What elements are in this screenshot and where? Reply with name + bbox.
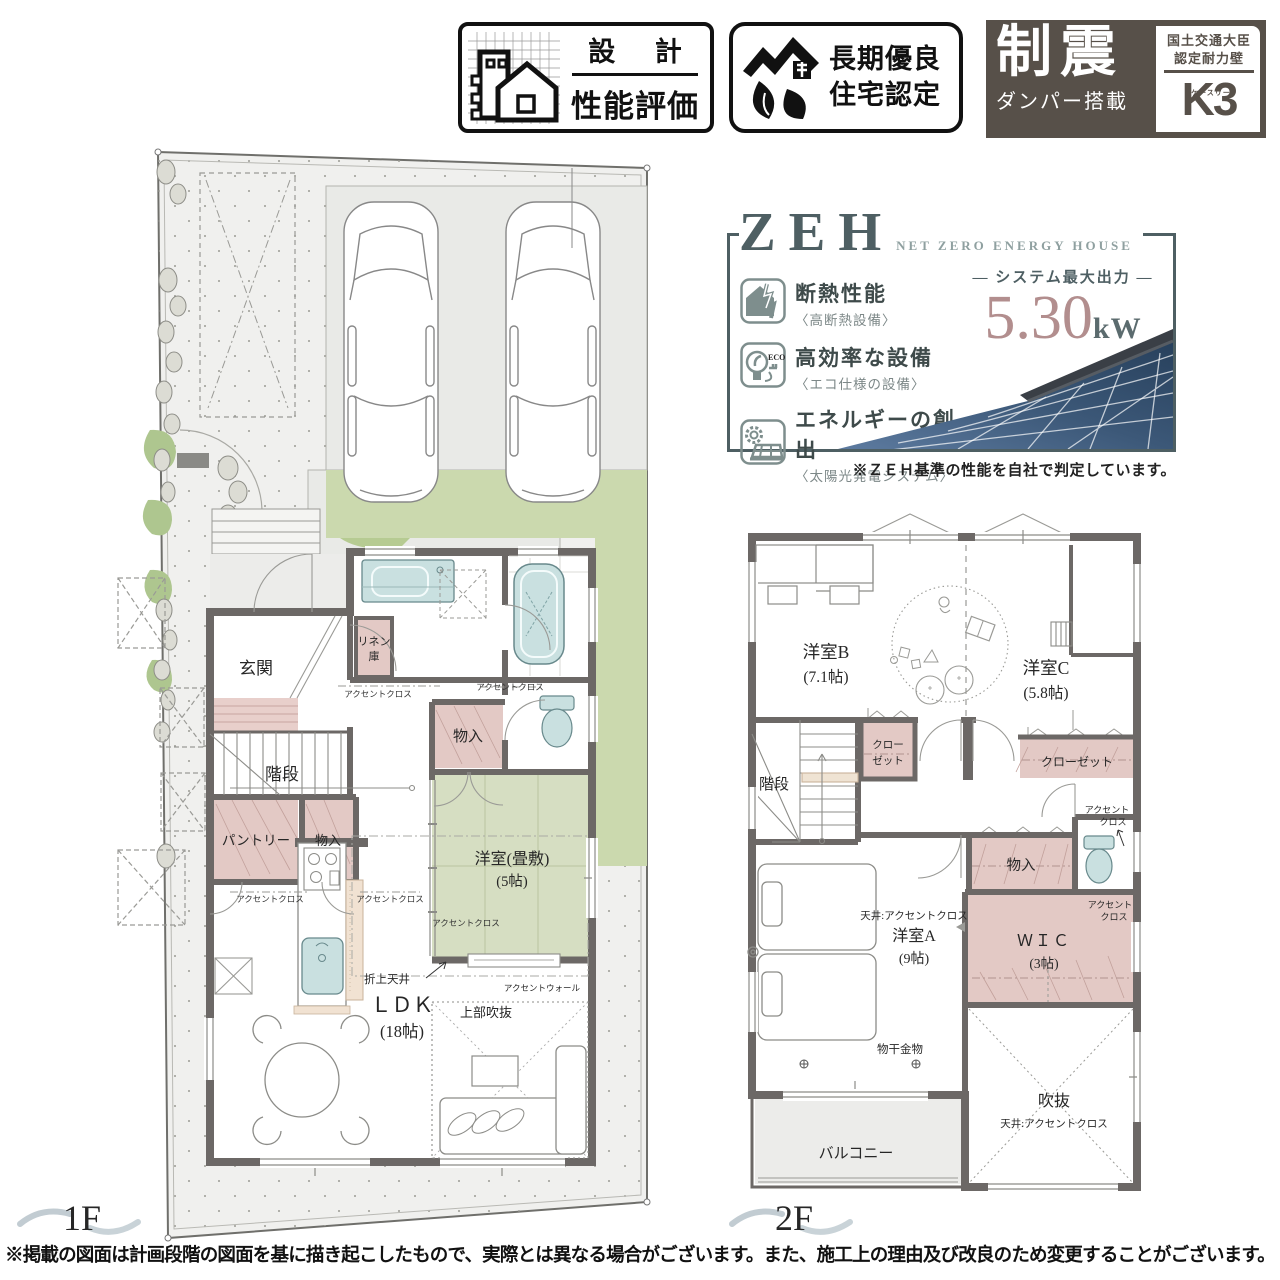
room-label-closet-r: クローゼット bbox=[1041, 755, 1113, 769]
label-accent-cloth: アクセントクロス bbox=[476, 682, 544, 692]
floor-plan-2f: 洋室B (7.1帖) 洋室C (5.8帖) 階段 クロー ゼット クローゼット … bbox=[728, 502, 1148, 1202]
k3-logo-kana: ケースリー bbox=[1191, 90, 1231, 97]
room-label-monoiri-2f: 物入 bbox=[1007, 857, 1036, 874]
tv-board bbox=[468, 954, 560, 967]
room-label-youshitsu-c-size: (5.8帖) bbox=[1023, 684, 1068, 702]
room-label-youshitsu-a: 洋室A bbox=[892, 927, 936, 945]
zeh-title: ZEH bbox=[739, 204, 894, 259]
badge-design-divider bbox=[572, 73, 698, 76]
zeh-note: ※ＺＥＨ基準の性能を自社で判定しています。 bbox=[727, 459, 1176, 480]
toilet-1f bbox=[540, 696, 574, 747]
room-label-tatami: 洋室(畳敷) bbox=[475, 849, 550, 868]
room-label-closet-l2: ゼット bbox=[872, 755, 904, 767]
floor-1f-text: 1F bbox=[63, 1198, 101, 1238]
house-2f bbox=[746, 514, 1143, 1193]
badge-long-term-line2: 住宅認定 bbox=[829, 78, 959, 113]
room-label-youshitsu-a-size: (9帖) bbox=[899, 951, 930, 967]
room-label-wic: ＷＩＣ bbox=[1017, 933, 1071, 950]
room-label-closet-l1: クロー bbox=[872, 739, 904, 751]
label-joubu-fukinuke: 上部吹抜 bbox=[460, 1005, 512, 1020]
floor-plan-1f: 玄関 階段 パントリー 物入 リネン 庫 物入 洋室(畳敷) (5帖) ＬＤＫ … bbox=[110, 140, 658, 1250]
seismic-sub-label: ダンパー搭載 bbox=[996, 85, 1156, 114]
label-monohoshi: 物干金物 bbox=[877, 1042, 923, 1056]
room-label-ldk-size: (18帖) bbox=[380, 1022, 424, 1041]
label-accent-wall: アクセントウォール bbox=[504, 983, 581, 993]
room-label-youshitsu-b: 洋室B bbox=[803, 642, 850, 662]
room-label-fukinuke: 吹抜 bbox=[1038, 1092, 1070, 1110]
label-ceiling-accent-void: 天井:アクセントクロス bbox=[1000, 1117, 1107, 1130]
label-accent-cloth-wic2: クロス bbox=[1100, 912, 1127, 922]
room-label-pantry: パントリー bbox=[222, 833, 290, 848]
zeh-panel: ZEH NET ZERO ENERGY HOUSE 断熱性能 〈高断熱設備〉 E… bbox=[727, 236, 1176, 452]
label-accent-cloth: アクセントクロス bbox=[344, 689, 412, 699]
insulation-house-icon bbox=[740, 278, 786, 329]
badge-design-top-label: 設 計 bbox=[566, 30, 704, 69]
k3-logo: K3 ケースリー bbox=[1162, 76, 1256, 122]
label-accent-cloth-toilet2: クロス bbox=[1099, 817, 1126, 827]
room-label-youshitsu-c: 洋室C bbox=[1023, 658, 1070, 678]
disclaimer-text: ※掲載の図面は計画段階の図面を基に描き起こしたもので、実際とは異なる場合がござい… bbox=[5, 1241, 1277, 1267]
room-label-wic-size: (3帖) bbox=[1029, 956, 1058, 971]
label-accent-cloth-toilet: アクセント bbox=[1085, 805, 1130, 815]
badge-design-performance: 設 計 性能評価 bbox=[458, 22, 714, 133]
room-label-kaidan: 階段 bbox=[265, 765, 299, 784]
svg-text:ECO: ECO bbox=[768, 353, 785, 362]
label-accent-cloth: アクセントクロス bbox=[432, 918, 500, 928]
zeh-subtitle: NET ZERO ENERGY HOUSE bbox=[896, 238, 1133, 254]
seismic-main-label: 制震 bbox=[996, 24, 1156, 83]
room-label-monoiri2: 物入 bbox=[453, 728, 483, 745]
label-accent-cloth-wic: アクセント bbox=[1088, 900, 1133, 910]
eco-bulb-icon: ECO bbox=[740, 342, 786, 393]
room-label-linen2: 庫 bbox=[369, 649, 380, 663]
room-label-ldk: ＬＤＫ bbox=[371, 993, 434, 1017]
badge-long-term-housing: 長期優良 住宅認定 bbox=[729, 22, 963, 133]
room-label-balcony: バルコニー bbox=[819, 1146, 894, 1162]
room-label-genkan: 玄関 bbox=[239, 659, 273, 678]
floor-label-1f: 1F bbox=[16, 1186, 146, 1238]
house-leaf-icon bbox=[733, 35, 829, 121]
design-eval-house-icon bbox=[462, 26, 566, 129]
floor-label-2f: 2F bbox=[728, 1186, 858, 1238]
badge-seismic-damper: 制震 ダンパー搭載 国土交通大臣 認定耐力壁 K3 ケースリー bbox=[986, 20, 1266, 138]
solar-panel-photo bbox=[838, 297, 1173, 449]
badge-design-bottom-label: 性能評価 bbox=[566, 81, 704, 126]
room-label-monoiri: 物入 bbox=[315, 833, 341, 848]
room-label-tatami-size: (5帖) bbox=[496, 873, 528, 890]
toilet-2f bbox=[1084, 836, 1114, 883]
room-label-kaidan-2f: 階段 bbox=[759, 776, 789, 793]
k3-cert-line1: 国土交通大臣 bbox=[1162, 32, 1256, 50]
label-ceiling-accent-a: 天井:アクセントクロス bbox=[860, 909, 967, 922]
badge-long-term-line1: 長期優良 bbox=[829, 42, 959, 77]
room-label-linen1: リネン bbox=[358, 635, 391, 648]
floor-2f-text: 2F bbox=[775, 1198, 813, 1238]
k3-cert-line2: 認定耐力壁 bbox=[1162, 50, 1256, 68]
room-label-youshitsu-b-size: (7.1帖) bbox=[803, 668, 848, 686]
label-oriage-tenjou: 折上天井 bbox=[364, 972, 410, 986]
label-accent-cloth: アクセントクロス bbox=[236, 894, 304, 904]
label-accent-cloth: アクセントクロス bbox=[356, 894, 424, 904]
k3-certification-box: 国土交通大臣 認定耐力壁 K3 ケースリー bbox=[1156, 26, 1260, 132]
